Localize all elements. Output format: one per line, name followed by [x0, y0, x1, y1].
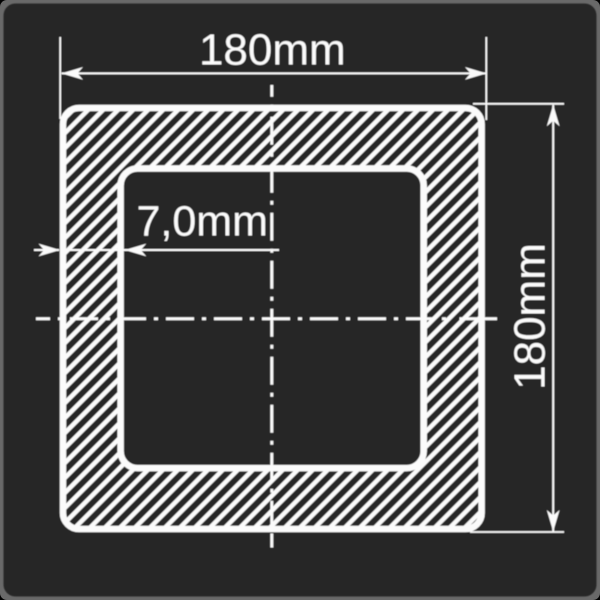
- svg-text:180mm: 180mm: [199, 26, 346, 75]
- svg-text:180mm: 180mm: [505, 243, 554, 390]
- svg-text:7,0mm: 7,0mm: [137, 197, 268, 245]
